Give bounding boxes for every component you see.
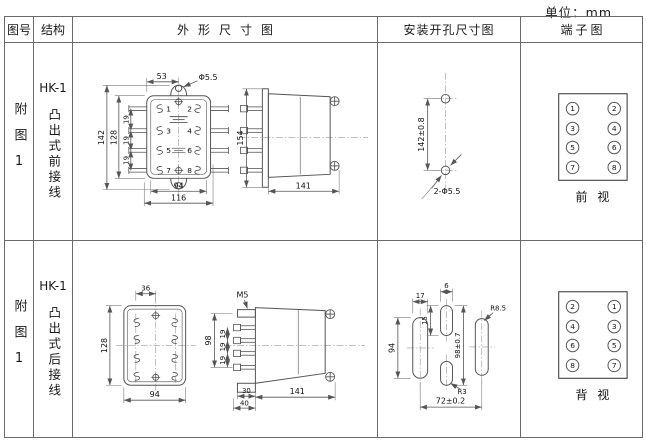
radius-r3: R3 xyxy=(457,388,466,396)
terminal-no: 1 xyxy=(570,104,575,113)
dim-17: 17 xyxy=(416,292,425,300)
view-label: 背视 xyxy=(576,388,620,402)
dim-m5: M5 xyxy=(236,291,248,300)
terminal-no: 8 xyxy=(187,166,192,175)
header-cell-structure: 结构 xyxy=(34,17,73,43)
terminal-no: 7 xyxy=(570,163,575,172)
terminal-no: 3 xyxy=(612,322,617,331)
row2-figure-label: 附图1 xyxy=(13,299,26,379)
row2-figure-cell: 附图1 xyxy=(5,241,34,437)
terminal-no: 1 xyxy=(166,104,171,113)
terminal-no: 3 xyxy=(166,126,171,135)
terminal-no: 4 xyxy=(187,126,192,135)
row1-structure-cell: HK-1 凸出式前接线 xyxy=(34,43,73,241)
dim-phi55: Φ5.5 xyxy=(199,73,218,82)
terminal-no: 6 xyxy=(612,143,617,152)
row1-side-dimensions: 154 141 xyxy=(236,89,339,194)
dim-142-tol: 142±0.8 xyxy=(417,117,426,151)
row1-mounting-cell: 142±0.8 2-Φ5.5 xyxy=(378,43,521,241)
radius-r85: R8.5 xyxy=(490,305,506,313)
dim-19: 19 xyxy=(219,330,227,339)
terminal-no: 6 xyxy=(570,341,575,350)
row1-structure-label: 凸出式前接线 xyxy=(47,108,60,201)
dim-98-tol: 98±0.7 xyxy=(454,333,462,359)
view-label: 前视 xyxy=(576,190,620,204)
row2-terminal-cell: 2 1 4 3 6 5 8 7 背视 xyxy=(521,241,642,437)
row2-front-view xyxy=(116,297,196,395)
terminal-no: 7 xyxy=(612,361,617,370)
dim-98: 98 xyxy=(204,335,213,345)
terminal-no: 2 xyxy=(612,104,617,113)
row1-figure-label: 附图1 xyxy=(13,102,26,182)
terminal-no: 5 xyxy=(612,341,617,350)
terminal-no: 3 xyxy=(570,124,575,133)
dim-142: 142 xyxy=(97,130,106,145)
terminal-no: 2 xyxy=(187,104,192,113)
dim-40: 40 xyxy=(240,400,249,408)
terminal-no: 4 xyxy=(612,124,617,133)
dim-19: 19 xyxy=(122,115,130,124)
row2-side-dimensions: M5 98 19 19 19 30 xyxy=(204,291,335,411)
row2-structure-cell: HK-1 凸出式后接线 xyxy=(34,241,73,437)
dim-128: 128 xyxy=(109,130,118,145)
row2-mounting-drawing: 17 94 6 15 98±0.7 xyxy=(378,241,520,437)
row1-mounting-drawing: 142±0.8 2-Φ5.5 xyxy=(378,43,520,240)
holes-label: 2-Φ5.5 xyxy=(434,187,461,196)
dim-141: 141 xyxy=(296,182,311,191)
header-cell-figure: 图号 xyxy=(5,17,34,43)
terminal-no: 1 xyxy=(612,302,617,311)
datasheet-page: 单位：mm 图号 结构 外形尺寸图 安装开孔尺寸图 端子图 附图1 HK-1 凸… xyxy=(0,0,646,443)
row2-structure-label: 凸出式后接线 xyxy=(47,306,60,399)
row1-figure-cell: 附图1 xyxy=(5,43,34,241)
dim-94: 94 xyxy=(150,390,160,399)
dim-19: 19 xyxy=(219,356,227,365)
row1-outline-drawing: 1 2 3 4 5 6 7 8 53 Φ5.5 xyxy=(73,43,377,240)
dim-154: 154 xyxy=(236,130,245,145)
dim-94: 94 xyxy=(387,343,396,353)
row1-terminal-diagram: 1 2 3 4 5 6 7 8 前视 xyxy=(521,43,642,240)
spec-table: 图号 结构 外形尺寸图 安装开孔尺寸图 端子图 附图1 HK-1 凸出式前接线 xyxy=(4,16,643,438)
row2-outline-drawing: 36 128 94 xyxy=(73,241,377,437)
dim-36: 36 xyxy=(141,285,150,293)
dim-15: 15 xyxy=(421,316,429,325)
dim-19: 19 xyxy=(219,343,227,352)
dim-6: 6 xyxy=(444,282,448,290)
header-cell-outline: 外形尺寸图 xyxy=(73,17,378,43)
dim-19: 19 xyxy=(122,136,130,145)
header-cell-terminal: 端子图 xyxy=(521,17,642,43)
row1-outline-cell: 1 2 3 4 5 6 7 8 53 Φ5.5 xyxy=(73,43,378,241)
terminal-no: 5 xyxy=(570,143,575,152)
dim-94: 94 xyxy=(174,182,184,191)
dim-128: 128 xyxy=(100,338,109,353)
row2-outline-cell: 36 128 94 xyxy=(73,241,378,437)
row2-terminal-diagram: 2 1 4 3 6 5 8 7 背视 xyxy=(521,241,642,437)
terminal-no: 8 xyxy=(570,361,575,370)
dim-30: 30 xyxy=(242,387,251,395)
row2-mounting-cell: 17 94 6 15 98±0.7 xyxy=(378,241,521,437)
terminal-no: 4 xyxy=(570,322,575,331)
header-cell-mounting: 安装开孔尺寸图 xyxy=(378,17,521,43)
dim-19: 19 xyxy=(122,156,130,165)
terminal-no: 2 xyxy=(570,302,575,311)
row1-terminal-cell: 1 2 3 4 5 6 7 8 前视 xyxy=(521,43,642,241)
row2-side-view xyxy=(225,308,366,393)
terminal-no: 5 xyxy=(166,146,171,155)
row1-front-dimensions: 53 Φ5.5 142 128 19 19 19 xyxy=(97,72,218,206)
terminal-no: 8 xyxy=(612,163,617,172)
dim-141: 141 xyxy=(290,387,305,396)
dim-53: 53 xyxy=(157,72,167,81)
row1-side-view xyxy=(238,89,368,187)
terminal-no: 6 xyxy=(187,146,192,155)
row1-model-label: HK-1 xyxy=(39,81,67,95)
dim-116: 116 xyxy=(171,194,186,203)
row2-model-label: HK-1 xyxy=(39,279,67,293)
dim-72-tol: 72±0.2 xyxy=(436,397,465,406)
terminal-no: 7 xyxy=(166,166,171,175)
